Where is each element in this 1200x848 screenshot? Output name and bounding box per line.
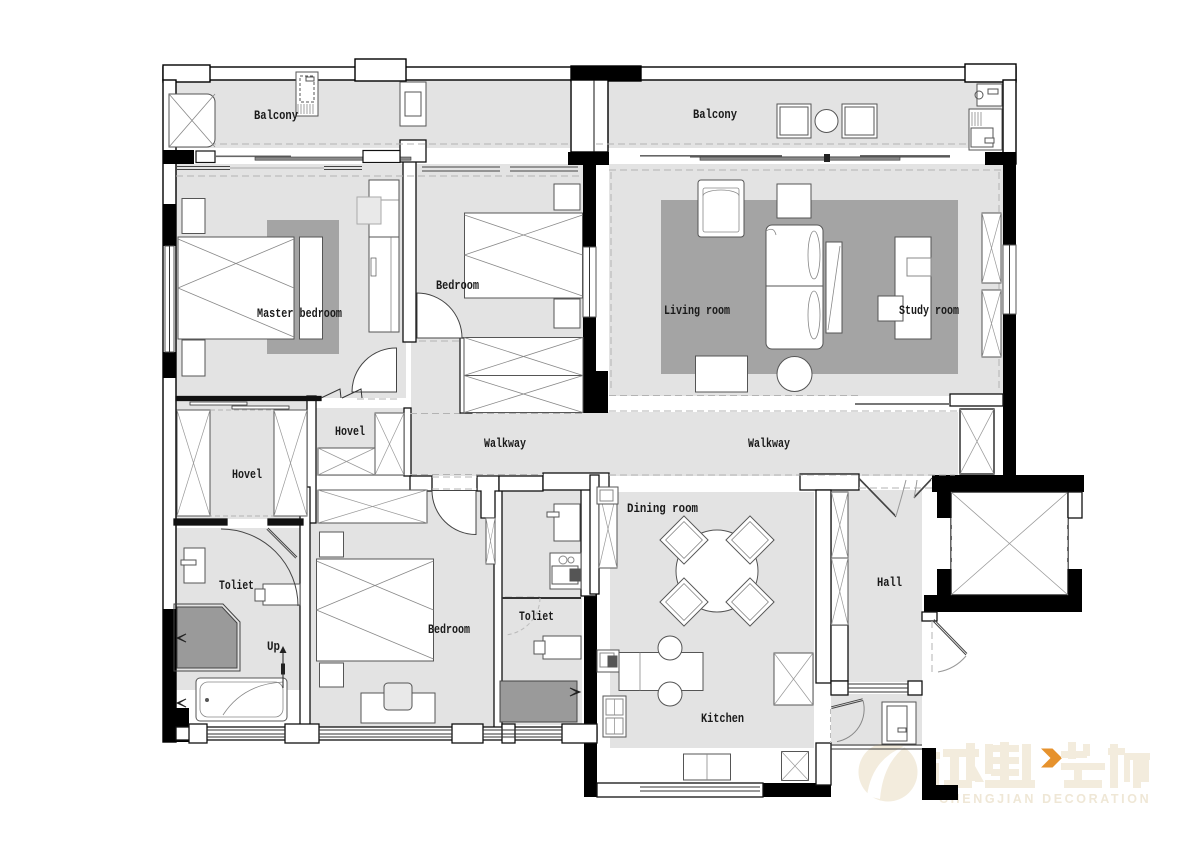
svg-text:Hovel: Hovel (232, 467, 262, 482)
svg-text:Study room: Study room (899, 303, 959, 318)
svg-text:Hovel: Hovel (335, 424, 365, 439)
svg-text:Up: Up (267, 639, 280, 654)
svg-text:Bedroom: Bedroom (436, 278, 479, 293)
svg-text:Dining room: Dining room (627, 501, 698, 516)
svg-text:Bedroom: Bedroom (428, 622, 470, 637)
svg-text:Walkway: Walkway (484, 436, 526, 451)
svg-text:Hall: Hall (877, 575, 902, 590)
svg-text:Walkway: Walkway (748, 436, 790, 451)
svg-text:Balcony: Balcony (693, 107, 737, 122)
svg-text:Living room: Living room (664, 303, 730, 318)
svg-text:Balcony: Balcony (254, 108, 298, 123)
svg-text:Kitchen: Kitchen (701, 711, 744, 726)
svg-text:Master bedroom: Master bedroom (257, 306, 342, 321)
svg-text:CHENGJIAN DECORATION: CHENGJIAN DECORATION (939, 792, 1151, 806)
svg-text:Toliet: Toliet (519, 609, 554, 624)
svg-text:Toliet: Toliet (219, 578, 254, 593)
